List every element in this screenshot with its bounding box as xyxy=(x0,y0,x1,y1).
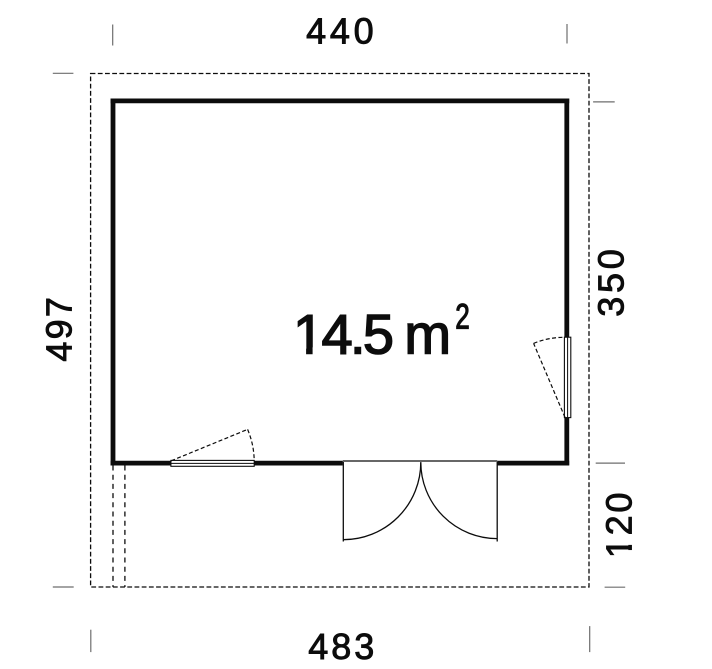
svg-text:440: 440 xyxy=(306,11,374,52)
svg-text:497: 497 xyxy=(38,297,79,362)
svg-text:483: 483 xyxy=(308,626,374,667)
svg-text:14.5 m: 14.5 m xyxy=(293,302,451,365)
svg-text:2: 2 xyxy=(455,296,470,336)
svg-text:120: 120 xyxy=(599,493,640,559)
svg-text:350: 350 xyxy=(590,249,631,317)
